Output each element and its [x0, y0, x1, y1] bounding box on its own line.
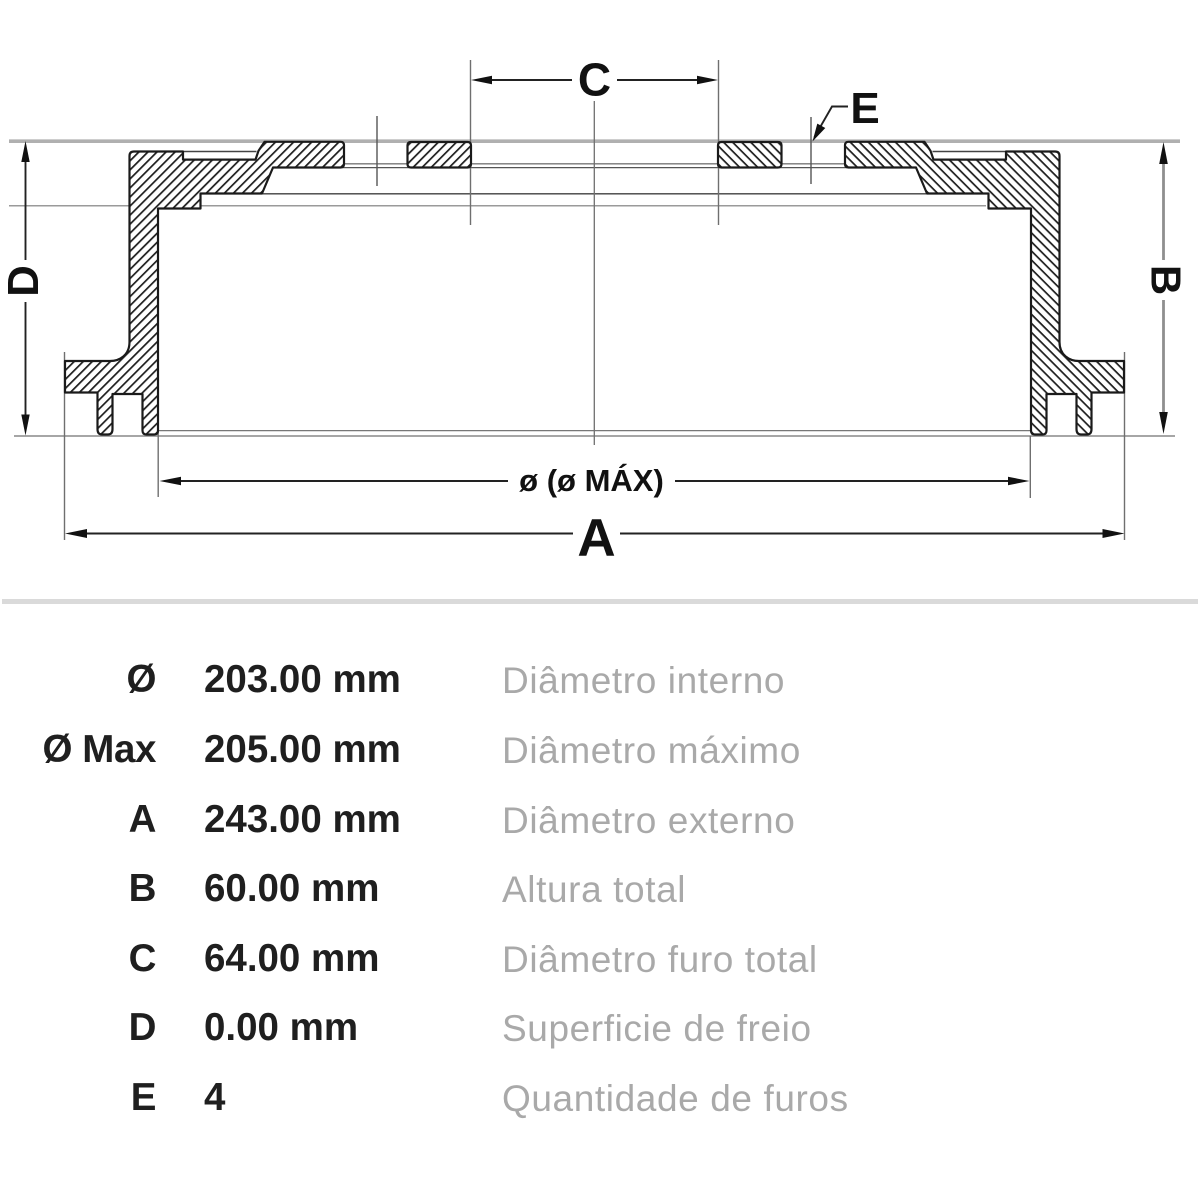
svg-text:A: A — [577, 509, 615, 568]
svg-text:ø (ø MÁX): ø (ø MÁX) — [519, 463, 664, 498]
svg-text:E: E — [850, 84, 879, 133]
svg-text:C: C — [578, 54, 611, 106]
svg-text:D: D — [0, 265, 48, 297]
svg-text:B: B — [1143, 265, 1190, 295]
